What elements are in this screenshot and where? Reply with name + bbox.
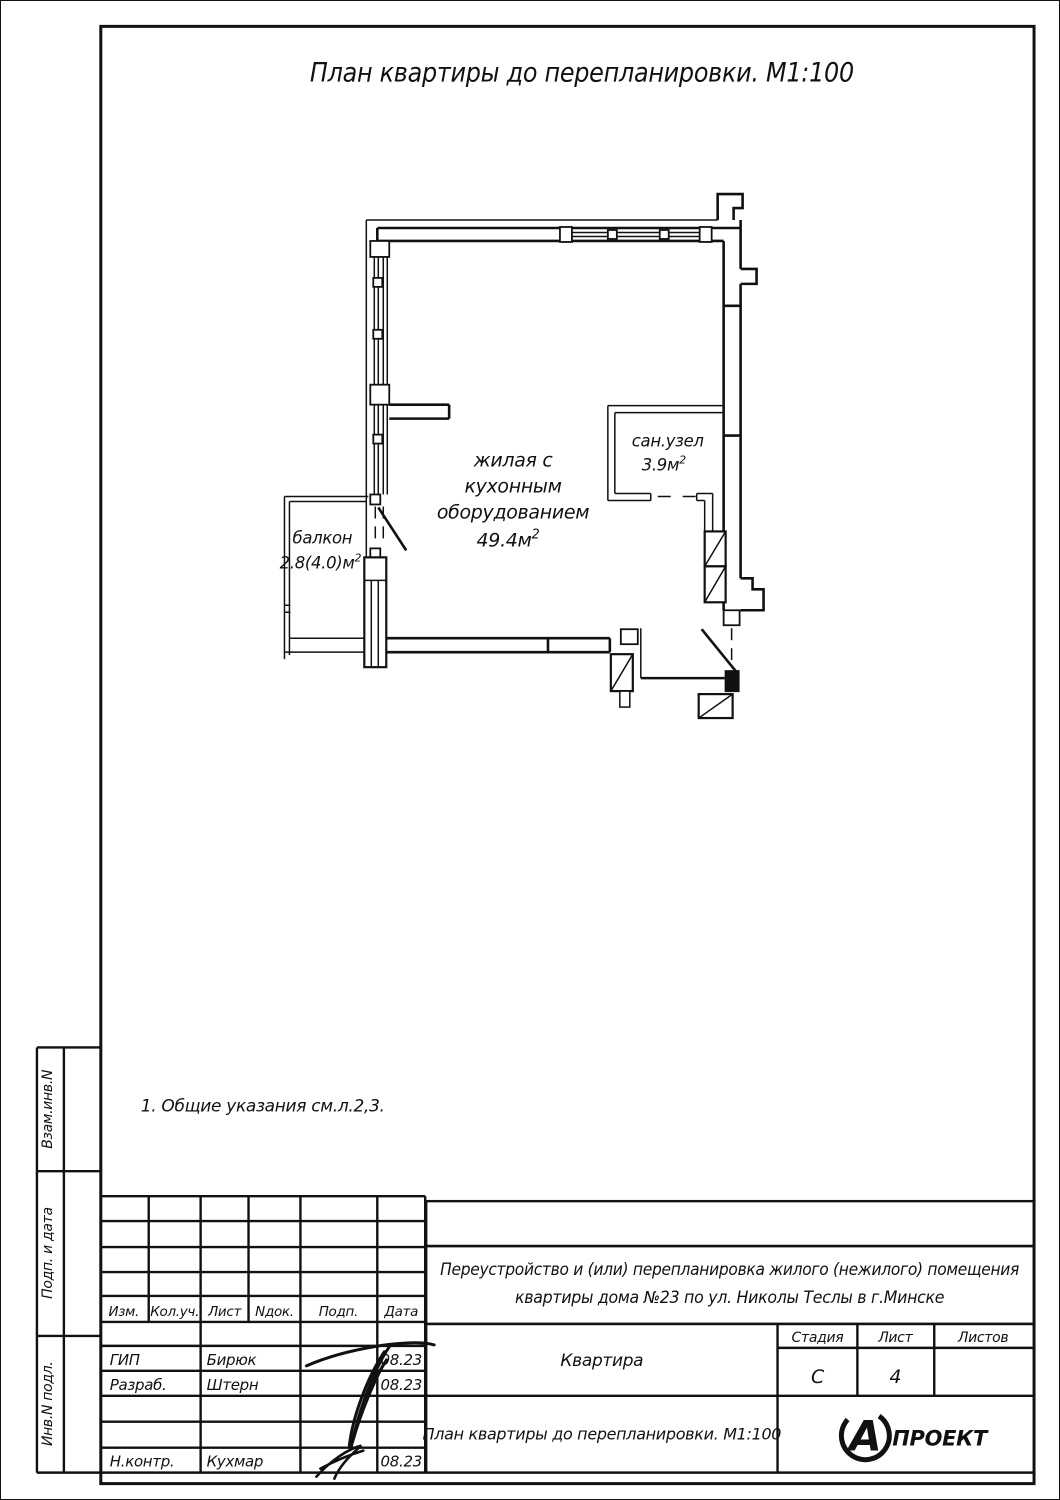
drawing-name: План квартиры до перепланировки. М1:100	[423, 1425, 782, 1444]
window-jamb	[370, 241, 389, 257]
bathroom-label: сан.узел	[632, 432, 705, 451]
row-role: Разраб.	[110, 1376, 167, 1394]
bathroom-corner	[697, 493, 713, 531]
window-mullion	[373, 435, 382, 444]
general-note: 1. Общие указания см.л.2,3.	[141, 1095, 385, 1115]
bathroom-walls	[608, 406, 724, 501]
interior-wall-stub	[389, 405, 449, 419]
col-header-ndok: Nдок.	[255, 1304, 294, 1320]
col-header-podp: Подп.	[319, 1304, 358, 1320]
balcony-label: балкон	[293, 528, 353, 547]
balcony-door-swing	[378, 507, 406, 550]
logo-text: ПРОЕКТ	[892, 1427, 989, 1451]
row-date: 08.23	[381, 1376, 422, 1394]
side-strip: Взам.инв.N Подп. и дата Инв.N подл.	[37, 1047, 101, 1472]
col-header-data: Дата	[383, 1304, 418, 1320]
title-block: Изм. Кол.уч. Лист Nдок. Подп. Дата ГИП Б…	[101, 1196, 1034, 1478]
left-window-lines	[374, 257, 387, 385]
door-jamb-solid	[725, 670, 740, 692]
col-header-kol: Кол.уч.	[150, 1304, 199, 1320]
row-role: Н.контр.	[110, 1453, 175, 1471]
row-name: Кухмар	[207, 1453, 264, 1471]
page-title: План квартиры до перепланировки. М1:100	[310, 57, 854, 88]
door-jamb	[621, 629, 638, 644]
company-logo: А ПРОЕКТ	[832, 1402, 989, 1469]
row-name: Штерн	[207, 1376, 259, 1394]
drawing-sheet: План квартиры до перепланировки. М1:100	[0, 0, 1060, 1500]
project-line1: Переустройство и (или) перепланировка жи…	[440, 1260, 1019, 1279]
top-wall	[377, 228, 740, 241]
title-block-empty-box	[426, 1201, 1034, 1246]
sheet-value: 4	[889, 1366, 901, 1388]
window-mullion	[608, 230, 617, 239]
stage-label: Стадия	[792, 1330, 844, 1346]
bottom-wall	[386, 638, 610, 652]
door-jamb	[724, 610, 740, 625]
sheet-svg: План квартиры до перепланировки. М1:100	[1, 1, 1059, 1499]
bathroom-area: 3.9м2	[642, 454, 686, 475]
window-jamb	[700, 227, 712, 242]
top-window-lines	[572, 232, 702, 236]
row-date: 08.23	[381, 1453, 422, 1471]
object-name: Квартира	[560, 1350, 643, 1370]
wall-junction	[370, 385, 389, 405]
wall-stub	[620, 691, 630, 707]
sheets-label: Листов	[957, 1330, 1008, 1346]
window-mullion	[373, 278, 382, 287]
pilaster	[718, 194, 743, 220]
left-window-lines	[374, 405, 387, 495]
col-header-izm: Изм.	[109, 1304, 139, 1320]
room-area: 49.4м2	[477, 527, 540, 551]
window-jamb	[560, 227, 572, 242]
side-strip-label-2: Подп. и дата	[40, 1207, 56, 1299]
side-strip-label-1: Взам.инв.N	[40, 1069, 56, 1149]
project-line2: квартиры дома №23 по ул. Николы Теслы в …	[515, 1288, 944, 1307]
room-label-line2: кухонным	[464, 475, 561, 497]
sheet-label: Лист	[877, 1330, 913, 1346]
room-label-line1: жилая с	[473, 450, 554, 472]
row-name: Бирюк	[207, 1351, 257, 1369]
door-jamb	[370, 494, 380, 504]
logo-letter: А	[846, 1412, 881, 1461]
row-role: ГИП	[110, 1351, 140, 1369]
window-mullion	[660, 230, 669, 239]
col-header-list: Лист	[207, 1304, 242, 1320]
balcony-outline	[284, 496, 368, 659]
room-label-line3: оборудованием	[437, 501, 589, 523]
window-mullion	[373, 330, 382, 339]
right-wall	[724, 220, 764, 610]
project-box	[426, 1246, 1034, 1324]
wall-column	[364, 557, 386, 667]
balcony-area: 2.8(4.0)м2	[280, 551, 362, 572]
side-strip-label-3: Инв.N подл.	[40, 1361, 56, 1446]
stage-value: С	[811, 1366, 825, 1388]
